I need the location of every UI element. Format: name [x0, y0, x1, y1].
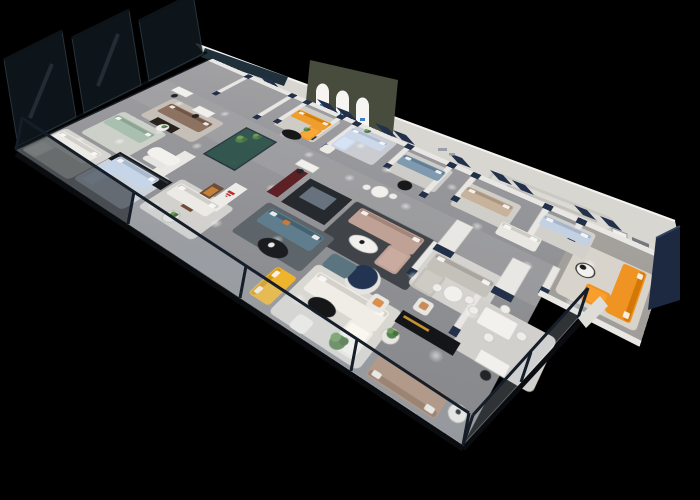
balustrade-rail — [22, 118, 469, 413]
floor-edge-skirt — [463, 320, 582, 449]
balustrade-pane-se — [463, 352, 531, 445]
foreground-glass-layer — [0, 0, 700, 500]
balustrade-pane-se — [521, 288, 588, 382]
showroom-isometric-render — [0, 0, 700, 500]
floor-edge-skirt — [16, 154, 463, 449]
balustrade-pane — [128, 192, 246, 298]
balustrade-rail-se — [473, 288, 588, 415]
balustrade-pane — [351, 339, 469, 445]
balustrade-pane — [240, 266, 357, 371]
east-navy-wall — [648, 226, 680, 310]
balustrade-pane-smoked — [16, 118, 134, 224]
smoked-glass-panel — [139, 0, 203, 81]
